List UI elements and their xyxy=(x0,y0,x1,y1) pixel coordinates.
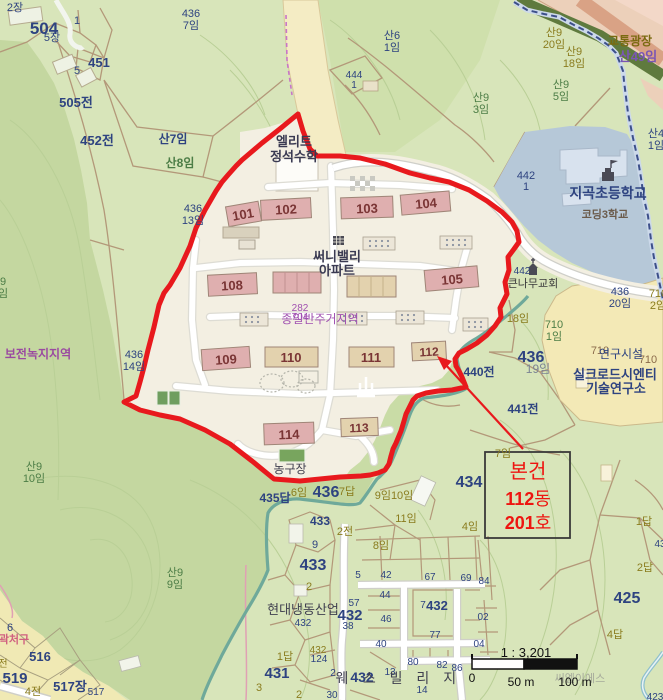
svg-text:44: 44 xyxy=(379,590,391,601)
svg-text:실크로드시엔티: 실크로드시엔티 xyxy=(573,367,657,382)
svg-text:1임: 1임 xyxy=(384,41,400,54)
svg-text:109: 109 xyxy=(215,351,238,367)
svg-text:산6: 산6 xyxy=(384,29,400,42)
svg-text:436: 436 xyxy=(611,286,629,298)
svg-text:산9: 산9 xyxy=(26,460,42,473)
svg-text:50 m: 50 m xyxy=(508,675,535,689)
svg-text:6: 6 xyxy=(7,622,13,634)
svg-text:4답: 4답 xyxy=(607,628,623,641)
svg-text:농구장: 농구장 xyxy=(273,462,306,476)
svg-text:9임10임: 9임10임 xyxy=(375,489,414,502)
svg-text:7: 7 xyxy=(420,600,426,611)
svg-text:77: 77 xyxy=(429,630,441,641)
svg-text:산8임: 산8임 xyxy=(166,155,195,170)
svg-text:04: 04 xyxy=(473,639,485,650)
svg-text:0: 0 xyxy=(469,671,476,685)
svg-text:13임: 13임 xyxy=(182,214,204,227)
svg-text:교통광장: 교통광장 xyxy=(608,33,652,48)
svg-text:43: 43 xyxy=(654,539,663,550)
svg-text:423: 423 xyxy=(647,692,663,700)
svg-text:9임: 9임 xyxy=(167,578,183,591)
svg-text:현대냉동산업: 현대냉동산업 xyxy=(267,602,339,617)
svg-text:42: 42 xyxy=(380,570,392,581)
svg-text:5임: 5임 xyxy=(553,90,569,103)
svg-text:써니밸리: 써니밸리 xyxy=(313,249,361,264)
svg-text:7임: 7임 xyxy=(495,447,511,460)
svg-text:기술연구소: 기술연구소 xyxy=(586,381,646,396)
svg-text:10임: 10임 xyxy=(23,472,45,485)
svg-text:2임: 2임 xyxy=(650,299,663,312)
svg-text:69: 69 xyxy=(460,573,472,584)
svg-text:종일반주거지역: 종일반주거지역 xyxy=(281,312,358,326)
svg-text:5: 5 xyxy=(355,570,361,581)
svg-text:20임: 20임 xyxy=(609,297,631,310)
svg-text:114: 114 xyxy=(278,427,300,443)
svg-text:9: 9 xyxy=(0,276,6,288)
svg-text:2: 2 xyxy=(296,689,302,700)
svg-text:57: 57 xyxy=(348,598,360,609)
svg-text:7답: 7답 xyxy=(339,485,355,498)
svg-text:436: 436 xyxy=(125,349,143,361)
svg-text:산9: 산9 xyxy=(566,45,582,58)
svg-text:431: 431 xyxy=(264,665,289,682)
svg-text:곽처구: 곽처구 xyxy=(0,632,29,646)
svg-text:110: 110 xyxy=(281,350,302,365)
svg-text:18임: 18임 xyxy=(507,312,529,325)
svg-text:451: 451 xyxy=(88,55,110,70)
svg-text:19임: 19임 xyxy=(526,362,550,376)
svg-text:산7임: 산7임 xyxy=(159,131,188,146)
svg-text:517: 517 xyxy=(88,687,105,698)
svg-text:3: 3 xyxy=(256,682,262,694)
svg-text:1답: 1답 xyxy=(277,650,293,663)
svg-text:9: 9 xyxy=(312,539,318,551)
svg-text:6임: 6임 xyxy=(291,486,307,499)
svg-text:103: 103 xyxy=(356,201,378,217)
svg-text:연구시설: 연구시설 xyxy=(599,347,643,361)
svg-text:아파트: 아파트 xyxy=(319,263,355,278)
svg-text:전: 전 xyxy=(0,658,8,670)
svg-text:30: 30 xyxy=(326,690,338,700)
svg-text:1임: 1임 xyxy=(546,330,562,343)
svg-text:20임: 20임 xyxy=(543,38,565,51)
svg-text:임: 임 xyxy=(0,287,8,300)
svg-text:440전: 440전 xyxy=(463,364,494,379)
svg-text:112: 112 xyxy=(419,344,439,359)
svg-text:436: 436 xyxy=(313,484,340,501)
svg-text:40: 40 xyxy=(375,639,387,650)
svg-text:8임: 8임 xyxy=(373,539,389,552)
svg-text:67: 67 xyxy=(424,572,436,583)
svg-text:정석수학: 정석수학 xyxy=(270,149,318,164)
svg-text:100 m: 100 m xyxy=(558,675,591,689)
svg-text:38: 38 xyxy=(342,621,354,632)
svg-text:3임: 3임 xyxy=(473,103,489,116)
svg-text:웨: 웨 xyxy=(336,670,349,686)
svg-text:산4: 산4 xyxy=(648,127,663,140)
svg-text:434: 434 xyxy=(456,474,483,491)
svg-text:큰나무교회: 큰나무교회 xyxy=(508,277,559,290)
svg-text:산49임: 산49임 xyxy=(619,49,657,64)
svg-text:46: 46 xyxy=(380,614,392,625)
svg-text:432: 432 xyxy=(310,645,327,656)
svg-text:432: 432 xyxy=(295,618,312,629)
svg-text:4전: 4전 xyxy=(25,685,41,698)
svg-text:102: 102 xyxy=(275,201,297,217)
svg-text:201호: 201호 xyxy=(505,513,552,533)
svg-text:710: 710 xyxy=(649,288,663,300)
svg-text:1답: 1답 xyxy=(636,515,652,528)
svg-text:보전녹지지역: 보전녹지지역 xyxy=(5,346,71,361)
svg-text:5장: 5장 xyxy=(44,31,60,44)
svg-text:4임: 4임 xyxy=(462,520,478,533)
svg-text:84: 84 xyxy=(478,576,490,587)
svg-text:산9: 산9 xyxy=(473,91,489,104)
svg-text:코딩3학교: 코딩3학교 xyxy=(582,207,629,221)
svg-text:2전: 2전 xyxy=(337,525,353,538)
svg-text:112동: 112동 xyxy=(505,489,551,509)
svg-text:505전: 505전 xyxy=(59,95,93,110)
svg-text:433: 433 xyxy=(300,557,327,574)
svg-text:5: 5 xyxy=(74,65,80,77)
svg-text:80: 80 xyxy=(407,657,419,668)
svg-text:436: 436 xyxy=(184,203,202,215)
svg-text:2: 2 xyxy=(306,581,312,593)
svg-text:441전: 441전 xyxy=(507,401,538,416)
svg-text:엘리트: 엘리트 xyxy=(276,134,312,149)
svg-text:지곡초등학교: 지곡초등학교 xyxy=(569,185,646,201)
svg-text:425: 425 xyxy=(614,590,641,607)
svg-text:108: 108 xyxy=(221,277,243,293)
svg-text:435답: 435답 xyxy=(259,490,290,505)
svg-text:산9: 산9 xyxy=(546,26,562,39)
svg-text:516: 516 xyxy=(29,649,51,664)
svg-text:11임: 11임 xyxy=(395,512,417,525)
svg-text:104: 104 xyxy=(415,195,439,212)
svg-text:02: 02 xyxy=(477,612,489,623)
svg-text:스 빌 리 지: 스 빌 리 지 xyxy=(363,670,461,686)
svg-text:517장: 517장 xyxy=(53,679,87,694)
svg-text:1임: 1임 xyxy=(648,139,663,152)
svg-text:432: 432 xyxy=(426,598,448,613)
svg-text:본건: 본건 xyxy=(510,460,547,483)
svg-text:14임: 14임 xyxy=(123,360,145,373)
svg-text:18임: 18임 xyxy=(563,57,585,70)
svg-text:452전: 452전 xyxy=(80,133,114,148)
svg-text:산9: 산9 xyxy=(553,78,569,91)
svg-text:436: 436 xyxy=(182,8,200,20)
svg-text:7임: 7임 xyxy=(183,19,199,32)
svg-text:14: 14 xyxy=(416,685,428,696)
svg-text:산9: 산9 xyxy=(167,566,183,579)
svg-text:1: 1 xyxy=(351,80,357,91)
svg-text:111: 111 xyxy=(361,350,381,365)
svg-text:1 : 3,201: 1 : 3,201 xyxy=(501,645,552,660)
svg-text:2장: 2장 xyxy=(7,1,23,14)
svg-text:710: 710 xyxy=(545,319,563,331)
svg-text:442: 442 xyxy=(514,266,531,277)
svg-text:433: 433 xyxy=(310,514,330,528)
svg-text:2답: 2답 xyxy=(637,561,653,574)
svg-text:1: 1 xyxy=(74,15,80,27)
svg-text:105: 105 xyxy=(441,271,464,288)
svg-text:113: 113 xyxy=(349,421,369,436)
svg-text:519: 519 xyxy=(2,670,27,687)
svg-text:1: 1 xyxy=(523,181,529,193)
